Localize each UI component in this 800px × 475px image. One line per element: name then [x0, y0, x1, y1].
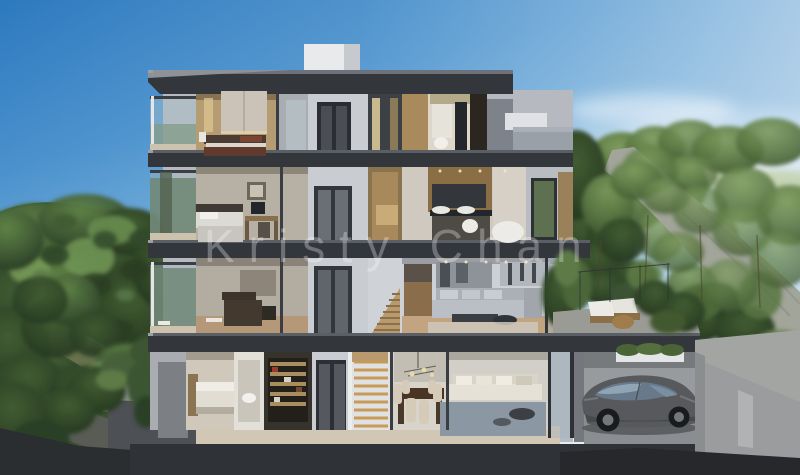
svg-text:Kristy Chan: Kristy Chan: [204, 220, 596, 272]
